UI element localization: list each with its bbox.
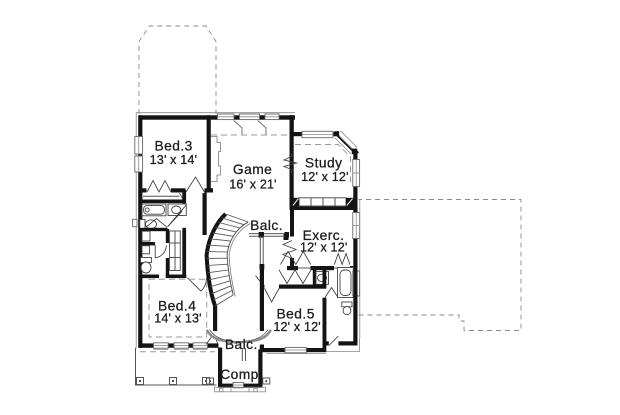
svg-text:Study: Study [305, 156, 343, 171]
svg-text:14' x 13': 14' x 13' [154, 312, 201, 326]
svg-text:13' x 14': 13' x 14' [150, 153, 197, 167]
svg-text:Game: Game [233, 162, 272, 177]
svg-text:12' x 12': 12' x 12' [273, 320, 320, 334]
svg-text:Balc.: Balc. [250, 218, 283, 233]
svg-text:12' x 12': 12' x 12' [301, 170, 348, 184]
svg-text:Balc.: Balc. [225, 337, 258, 352]
svg-text:12' x 12': 12' x 12' [300, 241, 347, 255]
svg-text:Bed.3: Bed.3 [154, 139, 192, 154]
svg-text:Comp: Comp [220, 367, 259, 382]
svg-text:16' x 21': 16' x 21' [229, 177, 276, 191]
